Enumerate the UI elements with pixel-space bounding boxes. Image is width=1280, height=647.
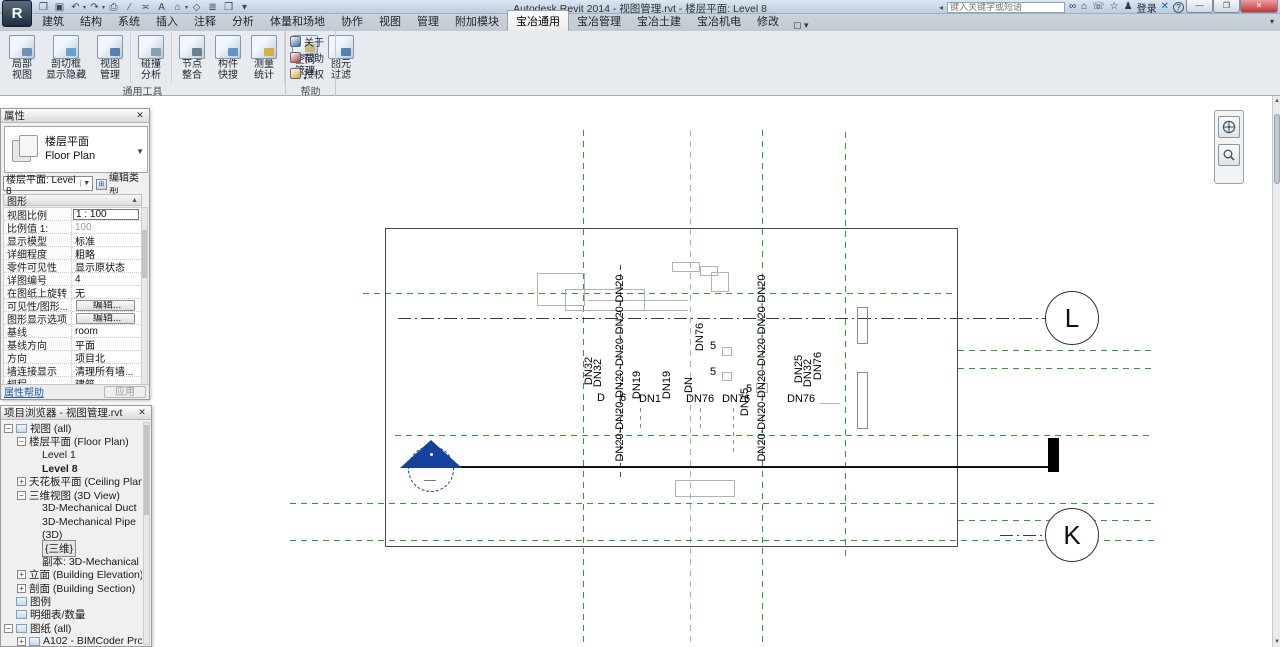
project-browser-panel: 项目浏览器 - 视图管理.rvt ✕ −视图 (all)−楼层平面 (Floor… [0, 405, 152, 647]
window-controls: — ❐ ✕ [1186, 0, 1278, 13]
tab-宝冶机电[interactable]: 宝冶机电 [689, 11, 749, 31]
combo-dropdown-icon[interactable]: ▼ [80, 180, 90, 187]
floor-plan-type-icon [5, 127, 45, 172]
component-quick-search-button[interactable]: 构件快搜 [210, 33, 246, 83]
tab-协作[interactable]: 协作 [333, 11, 371, 31]
tree-item[interactable]: −视图 (all) [2, 422, 142, 435]
property-label: 比例值 1: [4, 221, 72, 233]
button-label: 视图 [12, 70, 32, 81]
button-label: 碰撞 [141, 59, 161, 70]
tree-item-label[interactable]: 3D-Mechanical Pipe [42, 516, 136, 528]
scrollbar-thumb[interactable] [142, 230, 147, 278]
button-label: 节点 [182, 59, 202, 70]
valve-outline[interactable] [722, 372, 732, 381]
tree-item[interactable]: 明细表/数量 [2, 608, 142, 621]
button-group: 碰撞分析 [131, 33, 172, 83]
view-filter-combo[interactable]: 楼层平面: Level 8 ▼ [3, 176, 93, 191]
project-browser-tree: −视图 (all)−楼层平面 (Floor Plan)Level 1Level … [2, 422, 142, 646]
node-integration-icon [179, 35, 205, 59]
properties-help-link[interactable]: 属性帮助 [4, 384, 44, 399]
property-row: 图形显示选项编辑... [4, 312, 141, 325]
property-value[interactable]: 无 [72, 285, 141, 300]
tab-分析[interactable]: 分析 [224, 11, 262, 31]
tree-item-label[interactable]: 楼层平面 (Floor Plan) [29, 434, 129, 449]
button-label: 帮助 [304, 50, 324, 65]
ribbon-panel-通用工具: 局部视图剖切框显示隐藏视图管理碰撞分析节点整合构件快搜测量统计空间管理▾图元过滤… [0, 31, 286, 96]
properties-title-bar[interactable]: 属性 ✕ [1, 109, 149, 123]
tab-注释[interactable]: 注释 [186, 11, 224, 31]
type-name-cn: 楼层平面 [45, 135, 95, 149]
grid-line-horizontal [958, 368, 1154, 369]
steering-wheel-icon[interactable] [1218, 116, 1240, 138]
duct-segment[interactable] [857, 307, 868, 344]
equipment-outline[interactable] [672, 262, 700, 272]
tree-item[interactable]: −三维视图 (3D View) [2, 488, 142, 501]
section-tail-mark[interactable] [1048, 438, 1059, 472]
tab-结构[interactable]: 结构 [72, 11, 110, 31]
expand-icon[interactable]: + [17, 637, 26, 646]
dropdown-icon[interactable]: ▾ [185, 4, 188, 11]
zoom-icon[interactable] [1218, 144, 1240, 166]
property-label: 显示模型 [4, 234, 72, 246]
property-value: 100 [72, 222, 141, 233]
property-label: 图形显示选项 [4, 312, 72, 324]
button-label: 构件 [218, 59, 238, 70]
property-value[interactable]: 显示原状态 [72, 259, 141, 274]
tree-node-icon [29, 637, 40, 646]
tree-item[interactable]: 3D-Mechanical Pipe [2, 515, 142, 528]
button-label: 显示隐藏 [46, 70, 86, 81]
pipe-size-label[interactable]: 5 [746, 383, 752, 395]
edit-type-button[interactable]: ⊞ 编辑类型 [95, 176, 149, 192]
tab-附加模块[interactable]: 附加模块 [447, 11, 507, 31]
property-value[interactable]: room [72, 326, 141, 337]
component-quick-search-icon [215, 35, 241, 59]
edit-button[interactable]: 编辑... [76, 313, 135, 324]
property-label: 视图比例 [4, 208, 72, 220]
property-row: 零件可见性显示原状态 [4, 260, 141, 273]
infocenter-collapse-icon[interactable]: ◂ [939, 3, 943, 12]
pipe-size-label[interactable]: 6 [620, 392, 626, 404]
pipe-size-label[interactable]: 5 [710, 366, 716, 378]
equipment-line [820, 403, 840, 404]
pipe-size-label[interactable]: DN [683, 377, 695, 393]
search-input[interactable] [947, 2, 1065, 13]
graphics-section-header[interactable]: 图形 ▲ [3, 194, 142, 206]
section-center-dot [430, 453, 433, 456]
grid-bubble-L[interactable]: L [1045, 291, 1099, 345]
tree-item-label[interactable]: 三维视图 (3D View) [29, 488, 120, 503]
project-browser-title-bar[interactable]: 项目浏览器 - 视图管理.rvt ✕ [1, 406, 151, 420]
button-label: 剖切框 [51, 59, 81, 70]
ribbon: 局部视图剖切框显示隐藏视图管理碰撞分析节点整合构件快搜测量统计空间管理▾图元过滤… [0, 31, 1280, 96]
button-label: 快搜 [218, 70, 238, 81]
tab-视图[interactable]: 视图 [371, 11, 409, 31]
section-box-visibility-icon [53, 35, 79, 59]
panel-groups: 局部视图剖切框显示隐藏视图管理碰撞分析节点整合构件快搜测量统计空间管理▾图元过滤 [0, 31, 285, 82]
grid-bubble-K[interactable]: K [1045, 508, 1099, 562]
clash-analysis-icon [138, 35, 164, 59]
property-label: 基线 [4, 325, 72, 337]
drawing-canvas[interactable]: LK DN20-DN20-DN20-DN20-DN20-DN20DN20-DN2… [0, 96, 1272, 647]
tab-管理[interactable]: 管理 [409, 11, 447, 31]
tree-item[interactable]: 副本: 3D-Mechanical Du [2, 555, 142, 568]
property-label: 墙连接显示 [4, 364, 72, 376]
view-manager-button[interactable]: 视图管理 [92, 33, 128, 83]
expand-icon[interactable]: + [17, 570, 26, 579]
tree-node-icon [16, 624, 27, 633]
revit-logo: R [12, 5, 23, 22]
tree-node-icon [16, 610, 27, 619]
tab-修改[interactable]: 修改 [749, 11, 787, 31]
restore-button[interactable]: ❐ [1213, 0, 1240, 13]
help-icon[interactable]: ? [1173, 2, 1184, 13]
section-head-marker[interactable] [398, 438, 466, 496]
button-label: 统计 [254, 70, 274, 81]
properties-panel: 属性 ✕ 楼层平面 Floor Plan ▼ 楼层平面: Level 8 ▼ ⊞… [0, 108, 150, 400]
dropdown-icon[interactable]: ▾ [102, 4, 105, 11]
grid-line-horizontal [958, 350, 1154, 351]
expand-icon[interactable]: + [17, 477, 26, 486]
subscription-center-icon[interactable]: ⌂ [1081, 1, 1087, 13]
tab-宝冶管理[interactable]: 宝冶管理 [569, 11, 629, 31]
button-label: 视图 [100, 59, 120, 70]
tree-item[interactable]: Level 1 [2, 449, 142, 462]
project-browser-close-icon[interactable]: ✕ [136, 407, 148, 418]
ribbon-minimize-icon[interactable]: ▾ [1270, 17, 1274, 26]
additional-tools-dropdown-icon[interactable]: ▢ ▾ [793, 20, 809, 31]
license-button[interactable]: 授权 [286, 65, 335, 81]
type-selector-dropdown-icon[interactable]: ▼ [136, 147, 144, 156]
property-label: 方向 [4, 351, 72, 363]
tree-item[interactable]: Level 8 [2, 462, 142, 475]
tree-item[interactable]: +A102 - BIMCoder Project [2, 635, 142, 646]
pipe-size-label[interactable]: D [597, 392, 605, 404]
infocenter-icons: ∞⌂☏☆♟ [1069, 1, 1133, 13]
partial-view-button[interactable]: 局部视图 [4, 33, 40, 83]
property-row: 可见性/图形...编辑... [4, 299, 141, 312]
tab-体量和场地[interactable]: 体量和场地 [262, 11, 333, 31]
panel-label: 帮助 [286, 83, 335, 95]
minimize-button[interactable]: — [1186, 0, 1213, 13]
pipe-size-label[interactable]: DN32 [592, 359, 604, 387]
tree-node-icon [16, 597, 27, 606]
edit-type-icon: ⊞ [96, 179, 107, 190]
tree-item[interactable]: +立面 (Building Elevation) [2, 568, 142, 581]
project-browser-scrollbar[interactable] [143, 422, 150, 645]
pipe-size-label[interactable]: 5 [710, 340, 716, 352]
sign-in-avatar-icon[interactable]: ♟ [1124, 1, 1133, 13]
info-center: ◂ ∞⌂☏☆♟ 登录 ✕ ? [939, 1, 1184, 13]
sign-in-button[interactable]: 登录 [1137, 0, 1157, 15]
tree-item[interactable]: −图纸 (all) [2, 621, 142, 634]
property-label: 零件可见性 [4, 260, 72, 272]
panel-label: 通用工具 [0, 83, 285, 95]
section-box-visibility-button[interactable]: 剖切框显示隐藏 [40, 33, 92, 83]
ribbon-tab-bar: 建筑结构系统插入注释分析体量和场地协作视图管理附加模块宝冶通用宝冶管理宝冶土建宝… [0, 14, 1280, 31]
node-integration-button[interactable]: 节点整合 [174, 33, 210, 83]
tree-item-label[interactable]: 图纸 (all) [30, 621, 71, 636]
favorites-icon[interactable]: ☆ [1110, 1, 1119, 13]
scroll-down-icon[interactable]: ▼ [1273, 639, 1280, 645]
button-label: 测量 [254, 59, 274, 70]
tree-node-icon [16, 424, 27, 433]
close-button[interactable]: ✕ [1240, 0, 1278, 13]
property-value[interactable]: 4 [72, 274, 141, 285]
section-line[interactable] [456, 466, 1048, 468]
pipe-size-label[interactable]: DN76 [694, 323, 706, 351]
ribbon-panel-帮助: 关于帮助授权帮助 [286, 31, 336, 96]
equipment-outline[interactable] [565, 289, 645, 311]
tree-item[interactable]: +天花板平面 (Ceiling Plan) [2, 475, 142, 488]
exchange-apps-icon[interactable]: ✕ [1161, 1, 1169, 13]
project-browser-title: 项目浏览器 - 视图管理.rvt [4, 405, 122, 420]
pipe-size-label[interactable]: DN76 [812, 352, 824, 380]
tree-item[interactable]: 3D-Mechanical Duct [2, 502, 142, 515]
tab-宝冶土建[interactable]: 宝冶土建 [629, 11, 689, 31]
scrollbar-thumb[interactable] [144, 425, 149, 515]
type-selector[interactable]: 楼层平面 Floor Plan ▼ [4, 126, 148, 173]
type-name-en: Floor Plan [45, 149, 95, 163]
dropdown-icon[interactable]: ▾ [83, 4, 86, 11]
equipment-outline[interactable] [711, 272, 729, 292]
collapse-icon[interactable]: − [4, 624, 13, 633]
tree-item[interactable]: {三维} [2, 542, 142, 555]
measure-statistics-button[interactable]: 测量统计 [246, 33, 282, 83]
tree-item[interactable]: +剖面 (Building Section) [2, 582, 142, 595]
collapse-icon[interactable]: − [17, 491, 26, 500]
pipe-size-label[interactable]: DN19 [661, 371, 673, 399]
tree-item[interactable]: −楼层平面 (Floor Plan) [2, 435, 142, 448]
view-manager-icon [97, 35, 123, 59]
tab-建筑[interactable]: 建筑 [34, 11, 72, 31]
pipe-size-label[interactable]: DN76 [787, 393, 815, 405]
collapse-icon[interactable]: − [4, 424, 13, 433]
drawing-vertical-scrollbar[interactable]: ▲ ▼ [1272, 96, 1280, 647]
pipe-size-label[interactable]: DN20-DN20-DN20-DN20-DN20-DN20 [756, 274, 768, 461]
properties-close-icon[interactable]: ✕ [134, 110, 146, 121]
property-label: 详图编号 [4, 273, 72, 285]
property-label: 在图纸上旋转 [4, 286, 72, 298]
navigation-bar [1214, 110, 1244, 184]
equipment-outline[interactable] [675, 480, 735, 497]
button-label: 管理 [100, 70, 120, 81]
section-collapse-icon[interactable]: ▲ [131, 197, 138, 204]
tab-插入[interactable]: 插入 [148, 11, 186, 31]
property-label: 详细程度 [4, 247, 72, 259]
tab-宝冶通用[interactable]: 宝冶通用 [507, 10, 569, 31]
button-label: 关于 [304, 34, 324, 49]
property-label: 可见性/图形... [4, 299, 72, 311]
button-label: 整合 [182, 70, 202, 81]
measure-statistics-icon [251, 35, 277, 59]
clash-analysis-button[interactable]: 碰撞分析 [133, 33, 169, 83]
partial-view-icon [9, 35, 35, 59]
tab-系统[interactable]: 系统 [110, 11, 148, 31]
apply-button[interactable]: 应用 [104, 386, 146, 398]
valve-outline[interactable] [722, 347, 732, 356]
help-button[interactable]: 帮助 [286, 49, 335, 65]
button-group: 局部视图剖切框显示隐藏视图管理 [2, 33, 131, 83]
button-label: 分析 [141, 70, 161, 81]
properties-title: 属性 [4, 108, 25, 123]
about-icon [290, 36, 301, 47]
scroll-up-icon[interactable]: ▲ [1273, 98, 1280, 104]
properties-scrollbar[interactable] [141, 207, 148, 387]
application-menu-button[interactable]: R [2, 0, 32, 27]
button-label: 局部 [12, 59, 32, 70]
communication-center-icon[interactable]: ☏ [1092, 1, 1105, 13]
button-group: 节点整合构件快搜测量统计 [172, 33, 285, 83]
tree-item-label[interactable]: 3D-Mechanical Duct [42, 502, 137, 514]
collapse-icon[interactable]: − [17, 437, 26, 446]
button-label: 授权 [304, 66, 324, 81]
pipe-size-label[interactable]: DN76 [686, 393, 714, 405]
properties-grid: 视图比例1 : 100比例值 1:100显示模型标准详细程度粗略零件可见性显示原… [3, 207, 142, 390]
search-icon[interactable]: ∞ [1069, 1, 1076, 13]
grid-line-K[interactable] [1000, 535, 1045, 536]
duct-segment[interactable] [857, 372, 868, 429]
pipe-size-label[interactable]: DN20-DN20-DN20-DN20-DN20-DN20 [614, 274, 626, 461]
license-icon [290, 68, 301, 79]
help-icon [290, 52, 301, 63]
section-center-dash [424, 480, 436, 481]
edit-button[interactable]: 编辑... [76, 300, 135, 311]
property-row: 在图纸上旋转无 [4, 286, 141, 299]
tree-item[interactable]: 图例 [2, 595, 142, 608]
tree-item-label[interactable]: Level 1 [42, 449, 76, 461]
expand-icon[interactable]: + [17, 584, 26, 593]
about-button[interactable]: 关于 [286, 33, 335, 49]
tree-item-label[interactable]: Level 8 [42, 463, 78, 475]
tree-item-label[interactable]: A102 - BIMCoder Project [43, 635, 142, 646]
property-label: 基线方向 [4, 338, 72, 350]
pipe-size-label[interactable]: DN1 [639, 393, 661, 405]
property-row: 视图比例1 : 100 [4, 208, 141, 221]
property-value[interactable]: 1 : 100 [73, 209, 139, 220]
scrollbar-thumb[interactable] [1274, 114, 1280, 184]
